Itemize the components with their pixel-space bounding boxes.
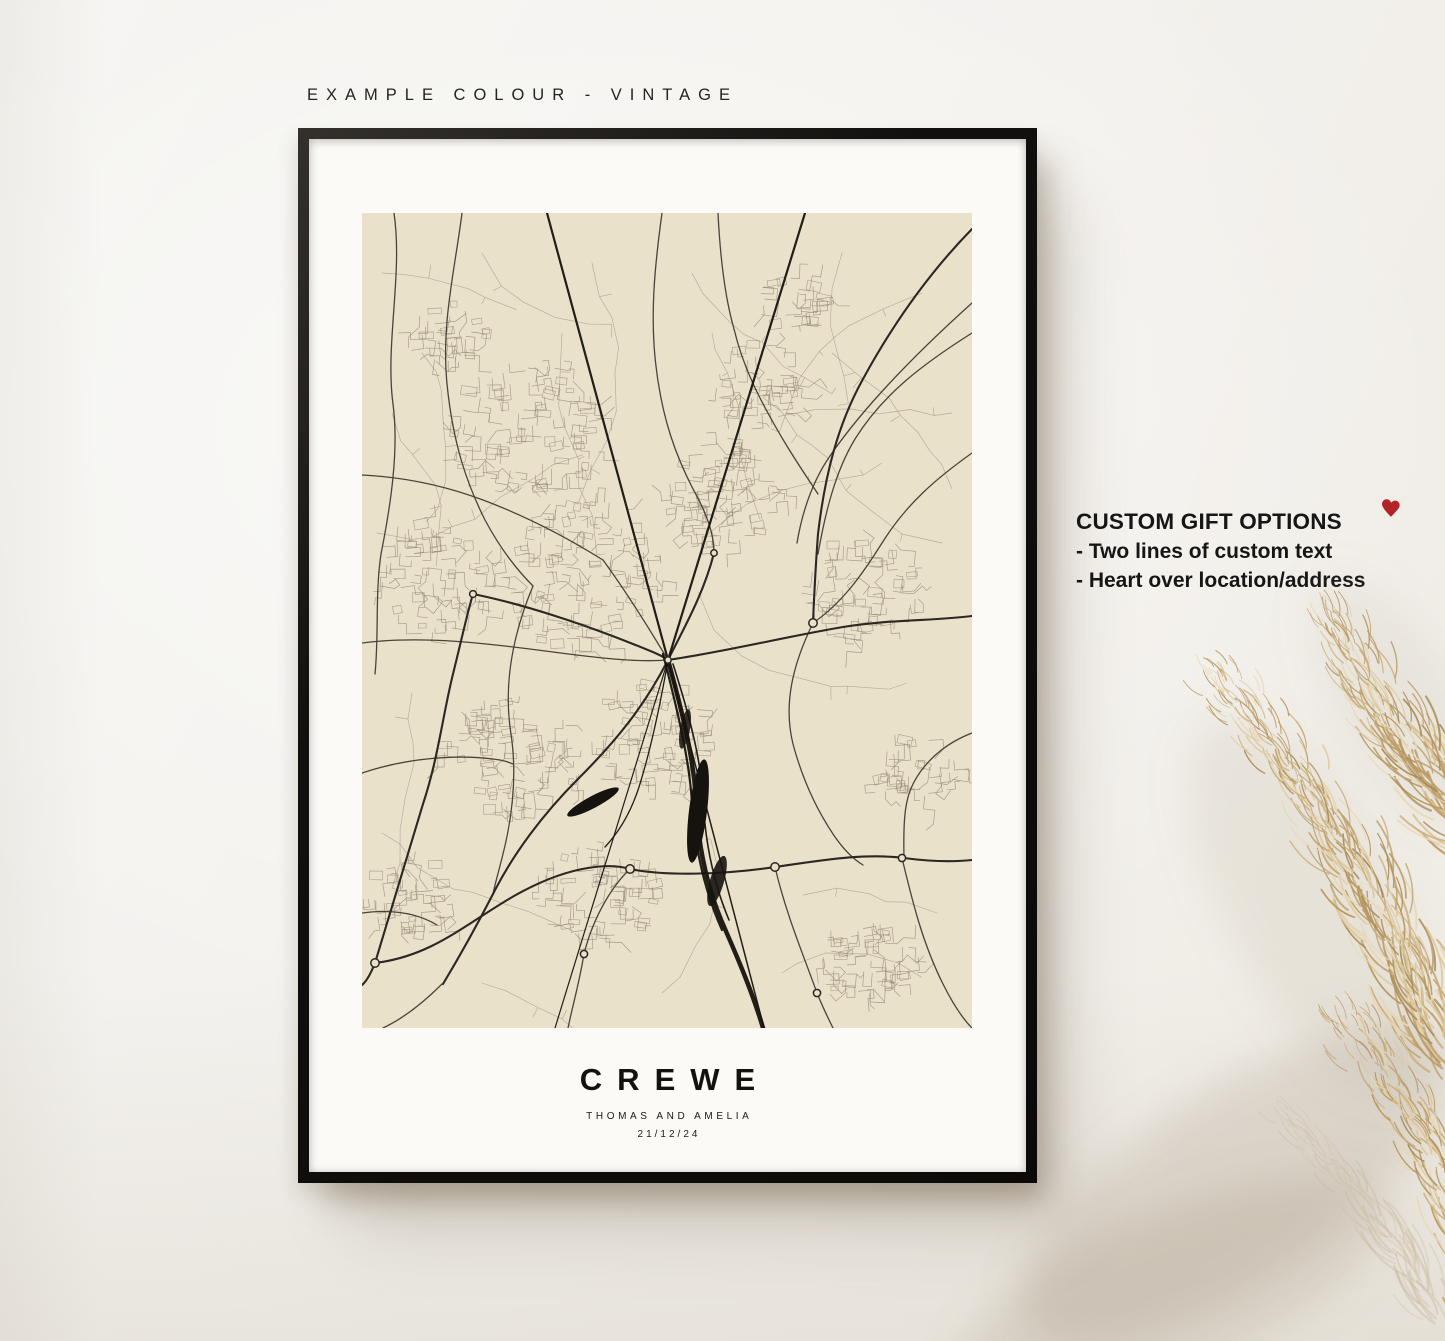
poster-mat: CREWE THOMAS AND AMELIA 21/12/24 xyxy=(309,139,1026,1172)
poster-text-block: CREWE THOMAS AND AMELIA 21/12/24 xyxy=(309,1028,1026,1140)
poster-frame: CREWE THOMAS AND AMELIA 21/12/24 xyxy=(298,128,1037,1183)
poster-subtitle: THOMAS AND AMELIA xyxy=(309,1111,1026,1122)
gift-option-item-2: - Heart over location/address xyxy=(1076,566,1365,595)
custom-gift-options-block: CUSTOM GIFT OPTIONS - Two lines of custo… xyxy=(1076,507,1365,595)
example-colour-label: EXAMPLE COLOUR - VINTAGE xyxy=(307,86,738,105)
city-map xyxy=(362,213,972,1028)
city-map-svg xyxy=(362,213,972,1028)
product-photo-scene: EXAMPLE COLOUR - VINTAGE CREWE THOMAS AN… xyxy=(0,0,1445,1341)
poster-title: CREWE xyxy=(309,1062,1026,1098)
gift-options-heading: CUSTOM GIFT OPTIONS xyxy=(1076,507,1365,537)
gift-option-item-1: - Two lines of custom text xyxy=(1076,537,1365,566)
poster-date: 21/12/24 xyxy=(309,1129,1026,1140)
grass-plumes xyxy=(1183,590,1445,1341)
heart-icon xyxy=(1377,493,1408,522)
